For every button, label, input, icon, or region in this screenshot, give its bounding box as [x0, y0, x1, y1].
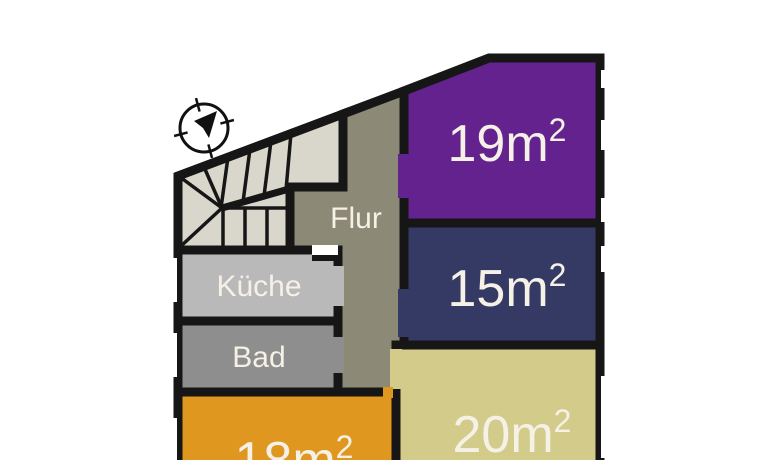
- label-kueche: Küche: [216, 270, 301, 303]
- window-room20: [601, 376, 607, 458]
- label-bad: Bad: [232, 341, 285, 374]
- floorplan-svg: Flur Küche Bad 19m2 15m2 20m2 18m2: [0, 0, 768, 460]
- window-bad: [171, 333, 177, 377]
- door-room18: [383, 387, 393, 398]
- window-room15: [601, 246, 607, 272]
- door-room15: [398, 289, 410, 337]
- label-20m2: 20m2: [453, 403, 572, 460]
- floorplan-canvas: Flur Küche Bad 19m2 15m2 20m2 18m2: [0, 0, 768, 460]
- window-room19-top: [601, 70, 607, 88]
- door-kueche-top-gap: [312, 245, 338, 255]
- door-room19: [398, 154, 410, 198]
- window-kueche: [171, 258, 177, 302]
- door-kueche: [332, 266, 344, 306]
- door-room20: [390, 349, 402, 389]
- label-19m2: 19m2: [448, 112, 567, 173]
- door-bad: [332, 337, 344, 373]
- door-kueche-top-sill: [312, 255, 338, 261]
- label-18m2: 18m2: [235, 429, 354, 460]
- label-flur: Flur: [330, 202, 382, 235]
- window-room18: [171, 418, 177, 460]
- window-room19-a: [601, 120, 607, 150]
- label-15m2: 15m2: [448, 257, 567, 318]
- window-room19-b: [601, 198, 607, 222]
